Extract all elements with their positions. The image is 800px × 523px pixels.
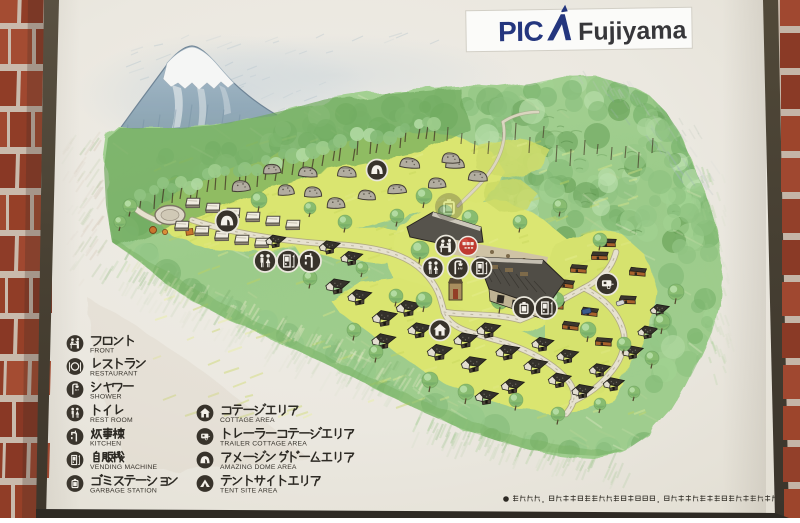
svg-text:COTTAGE AREA: COTTAGE AREA [220,417,275,424]
svg-text:GARBAGE STATION: GARBAGE STATION [90,488,157,495]
svg-text:AMAZING DOME AREA: AMAZING DOME AREA [220,464,297,471]
svg-text:VENDING MACHINE: VENDING MACHINE [90,464,157,471]
svg-text:TENT SITE AREA: TENT SITE AREA [220,488,278,495]
svg-text:Fujiyama: Fujiyama [578,16,688,46]
svg-text:SHOWER: SHOWER [90,394,122,401]
svg-text:TRAILER COTTAGE AREA: TRAILER COTTAGE AREA [220,441,307,448]
svg-text:KITCHEN: KITCHEN [90,441,121,448]
svg-text:RESTAURANT: RESTAURANT [90,371,138,378]
svg-text:FRONT: FRONT [90,348,114,355]
svg-text:PIC: PIC [498,16,544,48]
svg-text:REST ROOM: REST ROOM [90,417,133,424]
